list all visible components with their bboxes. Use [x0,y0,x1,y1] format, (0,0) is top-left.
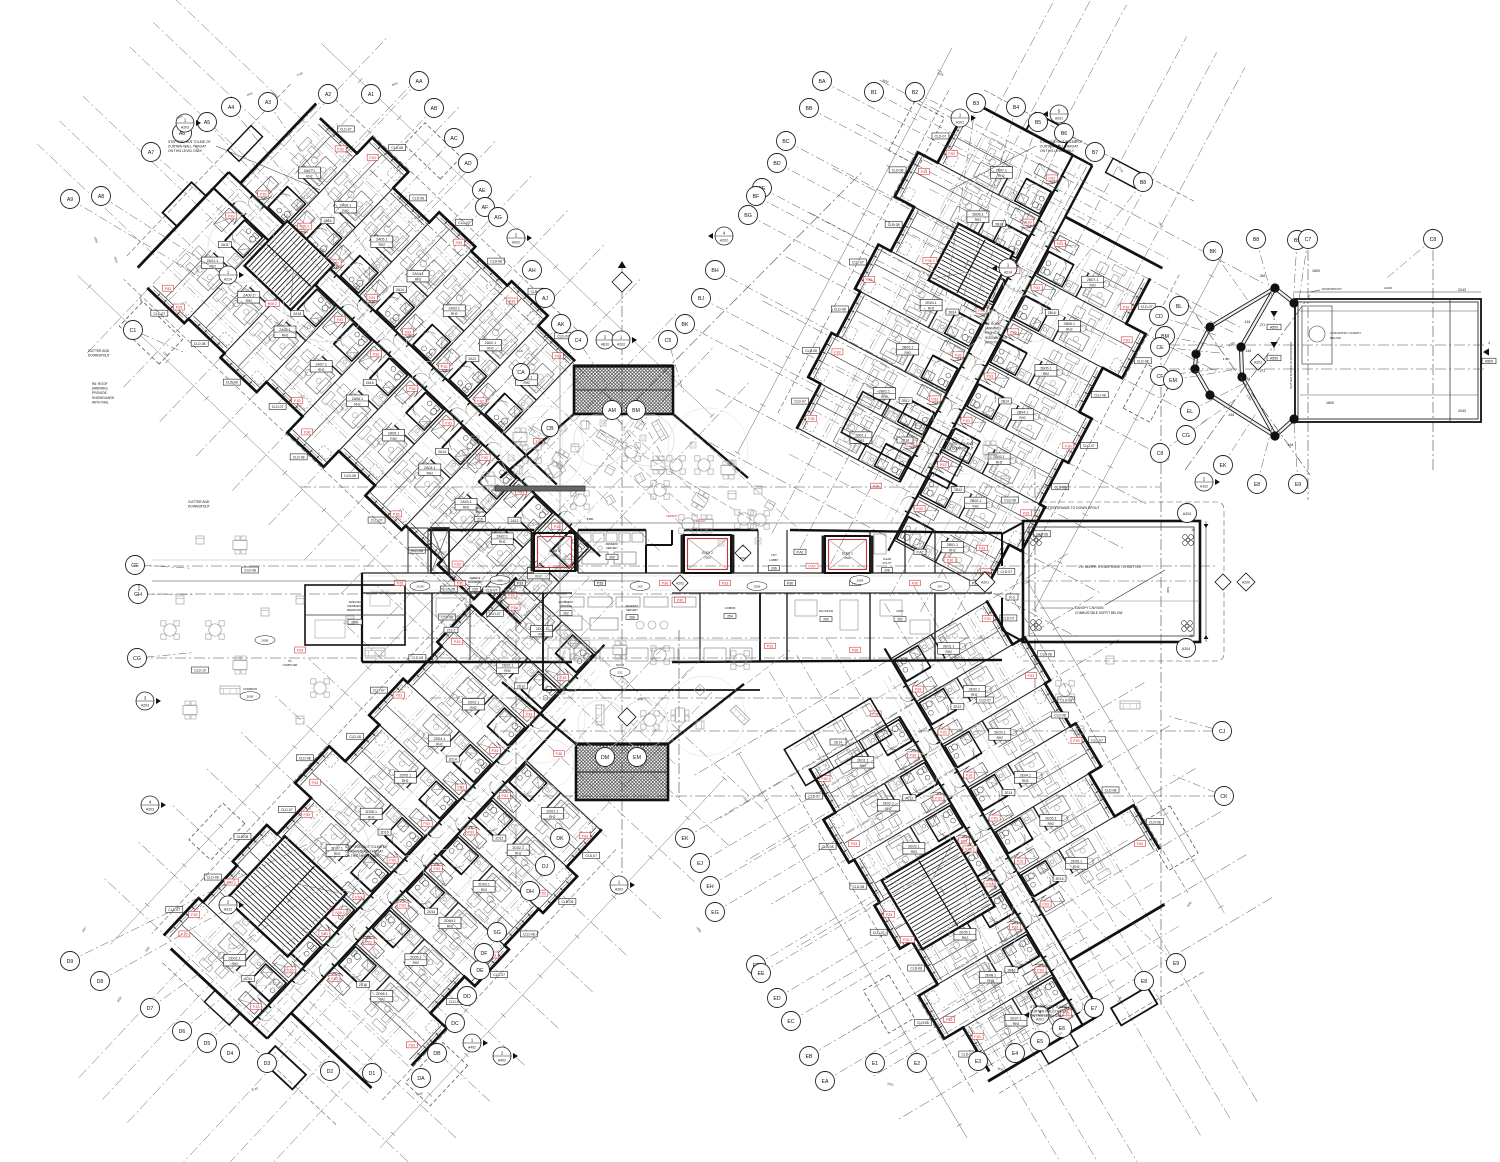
svg-text:CLD-08: CLD-08 [523,933,535,937]
svg-text:COMPUTER: COMPUTER [283,663,298,667]
svg-text:3630: 3630 [637,697,644,701]
svg-text:BM: BM [632,408,640,414]
svg-text:DE: DE [476,968,484,974]
svg-text:P.83: P.83 [1037,968,1044,972]
svg-text:P.83: P.83 [866,278,873,282]
svg-text:P.83: P.83 [297,649,304,653]
svg-text:2E14: 2E14 [834,741,842,745]
svg-text:DD: DD [463,994,471,1000]
svg-text:(AWNING): (AWNING) [985,327,1001,331]
svg-text:DF: DF [481,951,488,957]
svg-text:E4: E4 [1012,1051,1018,1057]
svg-text:P.83: P.83 [955,353,962,357]
svg-text:BA: BA [819,79,826,85]
svg-text:A202: A202 [720,239,728,243]
svg-text:COMMS: COMMS [725,606,736,610]
svg-text:2B12: 2B12 [902,399,910,403]
svg-text:E5: E5 [1037,1039,1043,1045]
svg-text:A4: A4 [228,105,234,111]
svg-text:18: 18 [1189,634,1193,638]
svg-text:P.83: P.83 [294,399,301,403]
svg-text:CLD-08: CLD-08 [562,900,574,904]
svg-text:2A04.1: 2A04.1 [424,466,435,470]
svg-text:P.83: P.83 [597,582,604,586]
svg-text:2D03.1: 2D03.1 [468,700,480,704]
svg-text:RH2: RH2 [996,460,1003,464]
svg-text:P.80: P.80 [912,582,919,586]
svg-text:EK: EK [682,836,689,842]
svg-text:RH2: RH2 [1013,1022,1020,1026]
svg-text:GUTTER AND: GUTTER AND [88,349,110,353]
svg-text:RH2: RH2 [282,333,289,337]
svg-text:GUTTER AND: GUTTER AND [952,442,974,446]
svg-text:P.83: P.83 [441,365,448,369]
svg-text:P.83: P.83 [165,287,172,291]
svg-text:2006: 2006 [262,638,269,642]
svg-text:P.83: P.83 [834,350,841,354]
svg-text:2E01.1: 2E01.1 [857,758,868,762]
svg-text:2E05.1: 2E05.1 [959,930,970,934]
svg-text:ELEV 3: ELEV 3 [549,549,560,553]
svg-text:A312: A312 [224,908,232,912]
svg-text:P.83: P.83 [851,842,858,846]
svg-text:DOWNSPOUT: DOWNSPOUT [88,354,110,358]
svg-text:RH2: RH2 [402,779,409,783]
svg-text:P.06 2: P.06 2 [925,259,934,263]
svg-text:P.83: P.83 [409,1043,416,1047]
svg-text:ED: ED [773,996,780,1002]
svg-text:CURTAIN WALL THROAT: CURTAIN WALL THROAT [168,145,206,149]
svg-text:AE: AE [479,188,486,194]
svg-text:2B02.1: 2B02.1 [970,499,981,503]
svg-text:P.83: P.83 [409,387,416,391]
svg-text:2B03.1: 2B03.1 [993,455,1004,459]
svg-text:RH2: RH2 [334,852,341,856]
svg-text:2B06.1: 2B06.1 [1064,322,1075,326]
svg-text:252: 252 [897,618,903,622]
svg-text:AC: AC [450,136,457,142]
svg-text:265: 265 [637,584,642,588]
svg-text:-164: -164 [1244,377,1251,381]
svg-text:208: 208 [884,569,890,573]
svg-text:P.80: P.80 [662,582,669,586]
svg-text:2A04.1: 2A04.1 [412,272,423,276]
svg-text:RH2: RH2 [523,381,530,385]
svg-text:2043: 2043 [1458,288,1466,292]
svg-text:AB: AB [431,106,438,112]
svg-text:P.83: P.83 [456,241,463,245]
svg-text:CG: CG [1182,433,1190,439]
svg-text:PROVIDE: PROVIDE [92,391,108,395]
svg-text:CLD-07: CLD-07 [272,405,284,409]
svg-text:-271: -271 [1259,369,1266,373]
svg-text:2A02.1: 2A02.1 [485,341,496,345]
svg-text:5480: 5480 [587,517,594,521]
svg-text:P.83: P.83 [397,582,404,586]
svg-text:P.83: P.83 [176,306,183,310]
svg-text:-164: -164 [1245,349,1252,353]
svg-text:2A14: 2A14 [438,450,446,454]
svg-text:P.06 2: P.06 2 [300,225,309,229]
svg-text:P.83: P.83 [331,977,338,981]
svg-text:2A16: 2A16 [366,381,374,385]
svg-text:STORAGE: STORAGE [560,605,573,608]
svg-text:A509: A509 [1270,326,1278,330]
svg-text:B8: B8 [1253,237,1259,243]
svg-text:RH2: RH2 [549,815,556,819]
svg-text:P.83: P.83 [433,867,440,871]
svg-text:SERVERY: SERVERY [606,547,618,550]
svg-text:CLD-07: CLD-07 [794,400,806,404]
svg-text:P.83: P.83 [910,753,917,757]
svg-text:RN-OFFICE: RN-OFFICE [819,609,833,613]
svg-text:P.83: P.83 [477,399,484,403]
svg-text:CURTAIN WALL THROAT: CURTAIN WALL THROAT [1030,1010,1068,1014]
svg-text:A214: A214 [1004,271,1012,275]
svg-text:2D14: 2D14 [427,910,435,914]
svg-text:1940: 1940 [137,585,141,592]
svg-text:BK: BK [682,322,689,328]
svg-text:RH2: RH2 [481,888,488,892]
svg-text:CLD-08: CLD-08 [1137,359,1149,363]
svg-text:P.83: P.83 [365,940,372,944]
svg-text:P.83: P.83 [304,431,311,435]
svg-text:CURTAIN WALL THROAT: CURTAIN WALL THROAT [1040,145,1078,149]
svg-text:EJ: EJ [697,861,703,867]
svg-text:2D03.1: 2D03.1 [478,882,490,886]
svg-text:RH2: RH2 [905,351,912,355]
svg-text:2A06.1: 2A06.1 [352,397,363,401]
svg-text:RH2: RH2 [973,504,980,508]
svg-text:CLD-08: CLD-08 [1149,820,1161,824]
svg-text:BJ: BJ [698,296,704,302]
svg-text:DOWNSPOUT: DOWNSPOUT [188,505,210,509]
svg-text:RH2: RH2 [881,395,888,399]
svg-text:C7: C7 [1305,237,1312,243]
svg-text:2B12: 2B12 [954,488,962,492]
svg-text:RH2: RH2 [306,174,313,178]
svg-text:P.83: P.83 [991,817,998,821]
svg-text:RH2: RH2 [413,961,420,965]
svg-text:C4: C4 [575,338,582,344]
svg-text:BF: BF [753,194,760,200]
svg-text:2D06.1: 2D06.1 [376,992,388,996]
svg-text:2D11: 2D11 [244,977,252,981]
svg-text:AG: AG [494,215,502,221]
svg-text:-164: -164 [1244,320,1251,324]
svg-text:DH: DH [526,889,534,895]
svg-text:2D05.1: 2D05.1 [399,773,411,777]
svg-text:E3: E3 [975,1059,981,1065]
svg-text:3.4%: 3.4% [1223,357,1230,361]
svg-text:EM: EM [1169,378,1177,384]
svg-text:A810: A810 [601,343,609,347]
svg-text:2E06.1: 2E06.1 [1071,859,1082,863]
svg-text:P.83: P.83 [821,777,828,781]
svg-text:2A01.1: 2A01.1 [207,259,218,263]
svg-text:STEP EOD OUT TOLINE OF: STEP EOD OUT TOLINE OF [345,845,388,849]
svg-text:P.86: P.86 [873,485,880,489]
svg-text:P.83: P.83 [405,330,412,334]
svg-text:BC: BC [782,139,789,145]
svg-text:P.83: P.83 [253,1005,260,1009]
svg-text:2E04.1: 2E04.1 [1020,773,1031,777]
svg-text:P.86: P.86 [852,649,859,653]
svg-text:CORRIDOR: CORRIDOR [468,581,482,584]
svg-text:CLD-08: CLD-08 [443,588,455,592]
svg-text:P.83: P.83 [1123,305,1130,309]
svg-text:2506: 2506 [857,578,864,582]
svg-text:P.83: P.83 [987,375,994,379]
svg-text:A402: A402 [498,1059,506,1063]
svg-text:264: 264 [497,578,502,582]
svg-text:DOWNSPOUT: DOWNSPOUT [1322,287,1342,291]
svg-text:CLD-08: CLD-08 [237,835,249,839]
svg-text:RH2: RH2 [1043,372,1050,376]
svg-text:2A03.1: 2A03.1 [449,307,460,311]
svg-text:P.83: P.83 [555,354,562,358]
svg-text:CLD-08: CLD-08 [1105,789,1117,793]
svg-text:STEP EOD OUT TOLINE OF: STEP EOD OUT TOLINE OF [1030,1005,1073,1009]
svg-text:P.83: P.83 [1137,842,1144,846]
svg-text:CK: CK [1220,794,1228,800]
svg-text:BG: BG [744,213,752,219]
svg-text:CLD-07: CLD-07 [340,128,352,132]
svg-text:2B04.1: 2B04.1 [925,301,936,305]
svg-text:2D12: 2D12 [495,837,503,841]
svg-text:A204: A204 [1182,647,1190,651]
svg-text:2A07.1: 2A07.1 [304,169,315,173]
svg-text:232: 232 [617,670,622,674]
svg-text:LIFT: LIFT [771,553,777,557]
svg-text:P.83: P.83 [948,152,955,156]
svg-text:2D01.1: 2D01.1 [536,627,548,631]
svg-text:DOWNSPOUT: DOWNSPOUT [952,447,974,451]
svg-text:BH: BH [711,268,718,274]
svg-text:P.83: P.83 [986,882,993,886]
svg-text:2% SLOPE STRUCTURE TO GUTTER: 2% SLOPE STRUCTURE TO GUTTER [1079,565,1142,569]
svg-text:P.83: P.83 [582,834,589,838]
svg-text:RESIDENT: RESIDENT [626,605,639,608]
svg-text:2E01.1: 2E01.1 [943,645,954,649]
svg-text:LOW ENTRY CANOPY: LOW ENTRY CANOPY [1330,331,1361,335]
svg-text:206: 206 [771,567,777,571]
svg-text:A7: A7 [148,150,154,156]
svg-text:CLD-07: CLD-07 [585,854,597,858]
svg-text:P.86: P.86 [947,559,954,563]
svg-text:CLD-08: CLD-08 [1094,393,1106,397]
svg-text:GUTTER AND: GUTTER AND [188,500,210,504]
svg-text:A201: A201 [1055,117,1063,121]
svg-text:BEDROOM: BEDROOM [347,608,363,612]
svg-text:P.83: P.83 [502,794,509,798]
svg-text:RH2: RH2 [504,669,511,673]
svg-text:RH2: RH2 [1022,779,1029,783]
svg-text:CJ: CJ [1219,729,1226,735]
svg-text:RH2: RH2 [427,471,434,475]
svg-text:P.A2: P.A2 [797,551,804,555]
svg-text:RH2: RH2 [1090,284,1097,288]
svg-text:254: 254 [727,615,733,619]
svg-text:RH2: RH2 [971,693,978,697]
svg-text:R6: ROOF: R6: ROOF [92,382,108,386]
svg-text:P.83: P.83 [1073,739,1080,743]
svg-text:CA: CA [517,370,525,376]
svg-text:2B03.1: 2B03.1 [902,345,913,349]
svg-text:CLD-07: CLD-07 [1083,444,1095,448]
svg-text:RH2: RH2 [538,633,545,637]
svg-text:DK: DK [556,836,564,842]
svg-text:ON THIS LEVEL ONLY: ON THIS LEVEL ONLY [168,149,203,153]
svg-text:B2: B2 [912,90,918,96]
svg-text:-164: -164 [1228,413,1235,417]
svg-text:E8: E8 [1141,979,1147,985]
svg-text:RH2: RH2 [354,402,361,406]
svg-text:2500: 2500 [704,556,711,560]
svg-text:12400: 12400 [1384,286,1392,290]
svg-text:2043: 2043 [1458,409,1466,413]
svg-text:2E03.1: 2E03.1 [994,731,1005,735]
svg-text:2D16: 2D16 [380,831,388,835]
svg-text:2E16: 2E16 [1056,877,1064,881]
svg-text:CLD-07: CLD-07 [1003,617,1015,621]
svg-text:A200: A200 [1242,581,1250,585]
svg-text:FIRE EXIT: FIRE EXIT [694,520,706,523]
svg-text:CURTAIN WALL THROAT: CURTAIN WALL THROAT [345,850,383,854]
svg-text:2B16: 2B16 [1048,311,1056,315]
svg-text:CLD-07: CLD-07 [852,261,864,265]
svg-text:2D04.1: 2D04.1 [434,737,446,741]
svg-text:CLD-08: CLD-08 [805,349,817,353]
svg-text:2B01.1: 2B01.1 [855,434,866,438]
svg-text:A402: A402 [468,1046,476,1050]
svg-text:CLD-08: CLD-08 [244,569,256,573]
svg-text:2A12: 2A12 [511,519,519,523]
svg-text:CLD-07: CLD-07 [979,699,991,703]
svg-text:2A09.1: 2A09.1 [243,293,254,297]
svg-text:D8: D8 [97,979,104,985]
svg-text:2B05.1: 2B05.1 [1040,366,1051,370]
svg-text:WITH RAIL: WITH RAIL [92,400,109,404]
svg-text:B5: B5 [1035,120,1041,126]
svg-text:P.80: P.80 [457,582,464,586]
svg-text:RH2: RH2 [390,437,397,441]
svg-text:2D05.1: 2D05.1 [410,956,422,960]
svg-text:P.83: P.83 [935,796,942,800]
svg-text:LOBBY: LOBBY [769,558,778,562]
svg-text:2D02.1: 2D02.1 [502,664,514,668]
svg-text:RH2: RH2 [911,850,918,854]
svg-text:(AWNING): (AWNING) [92,387,108,391]
svg-text:E1: E1 [872,1061,878,1067]
svg-text:CLD-07: CLD-07 [873,931,885,935]
svg-text:AM: AM [608,408,616,414]
svg-text:R-3: R-3 [1009,596,1015,600]
svg-text:P.83: P.83 [886,913,893,917]
svg-text:SG: SG [493,930,501,936]
svg-text:BB: BB [806,106,813,112]
svg-text:2B07.1: 2B07.1 [996,169,1007,173]
svg-text:RH2: RH2 [962,936,969,940]
svg-text:2B01.1: 2B01.1 [947,543,958,547]
svg-text:2E05.1: 2E05.1 [1045,816,1056,820]
svg-text:R6: ROOF: R6: ROOF [985,322,1001,326]
svg-text:CLD-08: CLD-08 [1054,485,1066,489]
svg-text:E9: E9 [1173,961,1179,967]
svg-text:A201: A201 [1254,361,1262,365]
svg-text:P.83: P.83 [974,1035,981,1039]
svg-text:CLD-08: CLD-08 [293,455,305,459]
svg-text:CLD-07: CLD-07 [371,519,383,523]
svg-text:218: 218 [477,518,483,522]
svg-text:P.83: P.83 [767,645,774,649]
svg-text:D3: D3 [264,1061,271,1067]
svg-text:1800: 1800 [1326,401,1334,405]
svg-text:2500: 2500 [551,554,558,558]
svg-text:EB: EB [806,1054,813,1060]
svg-text:P.83: P.83 [722,582,729,586]
svg-text:2A07.1: 2A07.1 [316,362,327,366]
svg-text:C5: C5 [665,338,672,344]
svg-text:-164: -164 [1287,443,1294,447]
svg-text:2D01.1: 2D01.1 [546,809,558,813]
svg-text:P.83: P.83 [399,904,406,908]
svg-text:CLD-08: CLD-08 [490,260,502,264]
svg-text:AD: AD [464,161,471,167]
svg-text:P.83: P.83 [304,813,311,817]
svg-text:CLD-08: CLD-08 [892,168,904,172]
svg-text:2A08.1: 2A08.1 [279,328,290,332]
svg-text:P.80: P.80 [677,599,684,603]
svg-text:RH2: RH2 [987,979,994,983]
svg-text:CLD-07: CLD-07 [1141,305,1153,309]
svg-text:C8: C8 [1430,237,1437,243]
svg-text:A5: A5 [204,120,210,126]
svg-text:A202: A202 [676,582,684,586]
svg-text:CLD-08: CLD-08 [412,197,424,201]
svg-text:CORRIDOR: CORRIDOR [243,687,257,691]
svg-text:A201: A201 [956,121,964,125]
svg-text:D5: D5 [204,1041,211,1047]
svg-text:CLD-10: CLD-10 [194,669,206,673]
svg-text:2E06.1: 2E06.1 [985,973,996,977]
svg-text:CLD-07: CLD-07 [168,908,180,912]
svg-text:CLD-07: CLD-07 [935,135,947,139]
svg-text:P.06 2: P.06 2 [227,881,236,885]
svg-text:RH2: RH2 [246,299,253,303]
svg-text:D6: D6 [179,1029,186,1035]
svg-text:A599: A599 [1270,357,1278,361]
svg-text:CLD-07: CLD-07 [557,334,569,338]
svg-text:P.83: P.83 [966,774,973,778]
svg-text:262: 262 [563,612,569,616]
svg-text:RH2: RH2 [1073,865,1080,869]
svg-text:P.83: P.83 [191,913,198,917]
svg-text:213.2: 213.2 [447,629,456,633]
svg-text:2B06.1: 2B06.1 [972,213,983,217]
svg-text:RH2: RH2 [470,706,477,710]
svg-text:E7: E7 [1091,1006,1097,1012]
svg-text:B6: B6 [1061,131,1067,137]
svg-text:A1: A1 [368,92,374,98]
svg-text:ROOM: ROOM [476,510,485,514]
svg-text:P.83: P.83 [517,582,524,586]
svg-text:ON THIS LEVEL ONLY: ON THIS LEVEL ONLY [345,854,380,858]
svg-text:P.83: P.83 [539,892,546,896]
svg-text:RH2: RH2 [515,851,522,855]
svg-text:B3: B3 [973,101,979,107]
svg-text:P.83: P.83 [369,156,376,160]
